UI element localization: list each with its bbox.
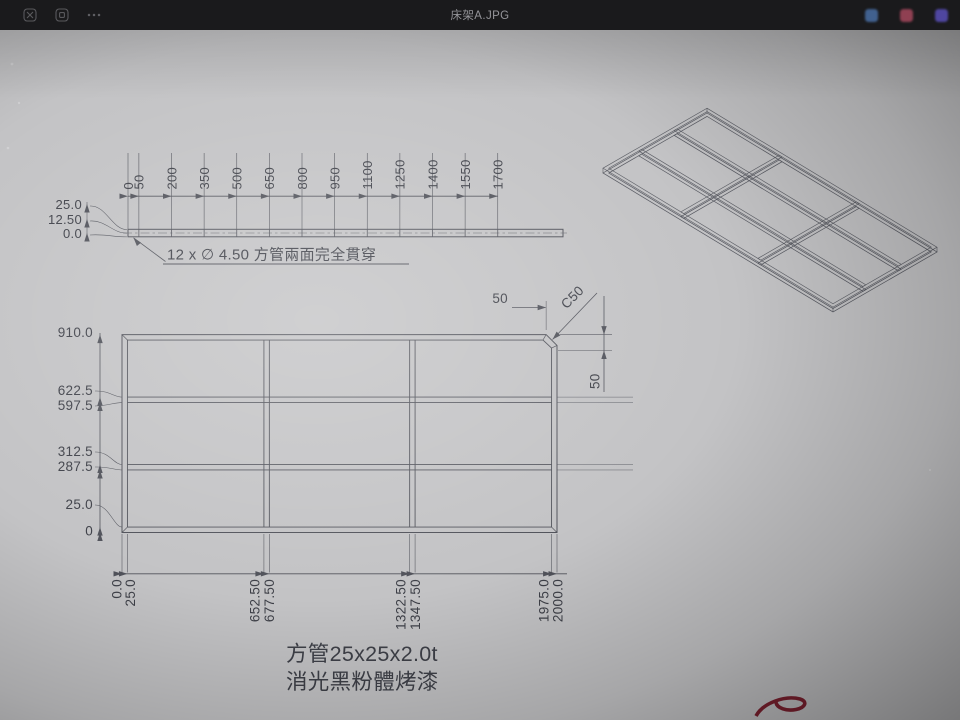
- toolbar-right: [865, 9, 948, 22]
- photo-background: [0, 30, 960, 720]
- toolbar-left: [22, 7, 102, 23]
- app-icon-blue[interactable]: [865, 9, 878, 22]
- slideshow-icon[interactable]: [54, 7, 70, 23]
- app-icon-purple[interactable]: [935, 9, 948, 22]
- gallery-icon[interactable]: [22, 7, 38, 23]
- more-icon[interactable]: [86, 7, 102, 23]
- titlebar: 床架A.JPG: [0, 0, 960, 30]
- window-title: 床架A.JPG: [450, 7, 509, 23]
- app-icon-red[interactable]: [900, 9, 913, 22]
